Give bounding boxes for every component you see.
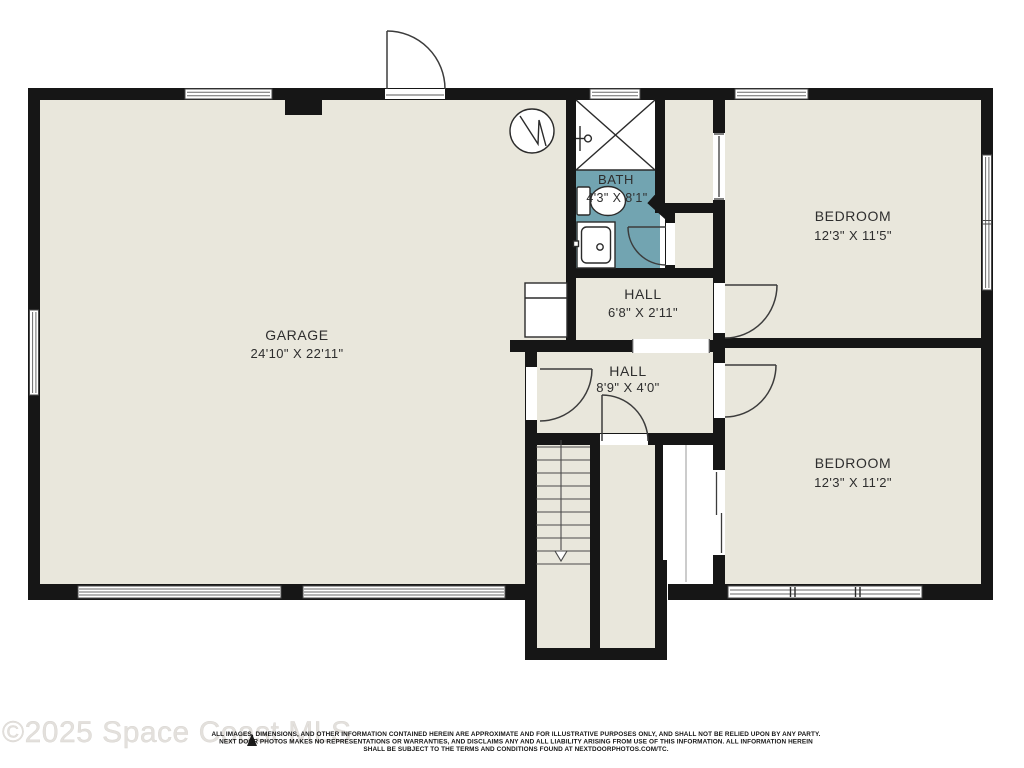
- garage-label: GARAGE: [265, 327, 329, 343]
- floor-plan-svg: GARAGE 24'10" X 22'11" BATH 4'3" X 8'1" …: [0, 0, 1024, 768]
- garage-dims: 24'10" X 22'11": [251, 346, 344, 361]
- window-shower-top: [590, 89, 640, 99]
- window-garage-left: [30, 310, 39, 395]
- wall-post: [285, 88, 322, 115]
- garage-door-2: [303, 586, 505, 598]
- window-bedroom2-bottom: [728, 586, 922, 598]
- hall1-dims: 6'8" X 2'11": [608, 305, 678, 320]
- bedroom2-label: BEDROOM: [815, 455, 892, 471]
- wall-entry-east: [655, 560, 667, 660]
- window-garage-top: [185, 89, 272, 99]
- hall1-label: HALL: [624, 286, 661, 302]
- bedroom1-dims: 12'3" X 11'5": [814, 228, 892, 243]
- footer: ©2025 Space Coast MLS ALL IMAGES, DIMENS…: [2, 716, 821, 753]
- bath-dims: 4'3" X 8'1": [586, 191, 647, 205]
- hall2-label: HALL: [609, 363, 646, 379]
- disclaimer-line-1: ALL IMAGES, DIMENSIONS, AND OTHER INFORM…: [211, 731, 820, 738]
- hall2-dims: 8'9" X 4'0": [596, 380, 659, 395]
- closet1-floor: [660, 100, 717, 210]
- wall-bedrooms-divider: [713, 338, 993, 348]
- wall-entry-bottom: [525, 648, 667, 660]
- garage-door-1: [78, 586, 281, 598]
- garage-floor-lower: [40, 340, 527, 584]
- closet1-sliding-door: [713, 133, 725, 200]
- wall-stair-east: [590, 433, 600, 650]
- sink-icon: [574, 222, 616, 268]
- bedroom1-label: BEDROOM: [815, 208, 892, 224]
- disclaimer-line-2: NEXT DOOR PHOTOS MAKES NO REPRESENTATION…: [219, 739, 813, 746]
- room-fills: [40, 100, 983, 652]
- garage-floor: [40, 100, 566, 340]
- wall-top: [28, 88, 993, 100]
- closet3-sliding-door: [713, 470, 725, 555]
- water-heater-icon: [510, 109, 554, 153]
- wall-hall1-top: [566, 268, 717, 278]
- bedroom2-dims: 12'3" X 11'2": [814, 475, 892, 490]
- closet3-floor: [663, 436, 715, 586]
- floor-plan-image: GARAGE 24'10" X 22'11" BATH 4'3" X 8'1" …: [0, 0, 1024, 768]
- window-bedroom1-top: [735, 89, 808, 99]
- disclaimer-line-3: SHALL BE SUBJECT TO THE TERMS AND CONDIT…: [363, 746, 668, 753]
- appliance-icon: [525, 283, 567, 337]
- wall-shower-closet: [655, 100, 665, 208]
- bath-label: BATH: [598, 172, 634, 187]
- window-bedroom1-right: [983, 155, 992, 290]
- halls-cased-opening: [632, 339, 710, 353]
